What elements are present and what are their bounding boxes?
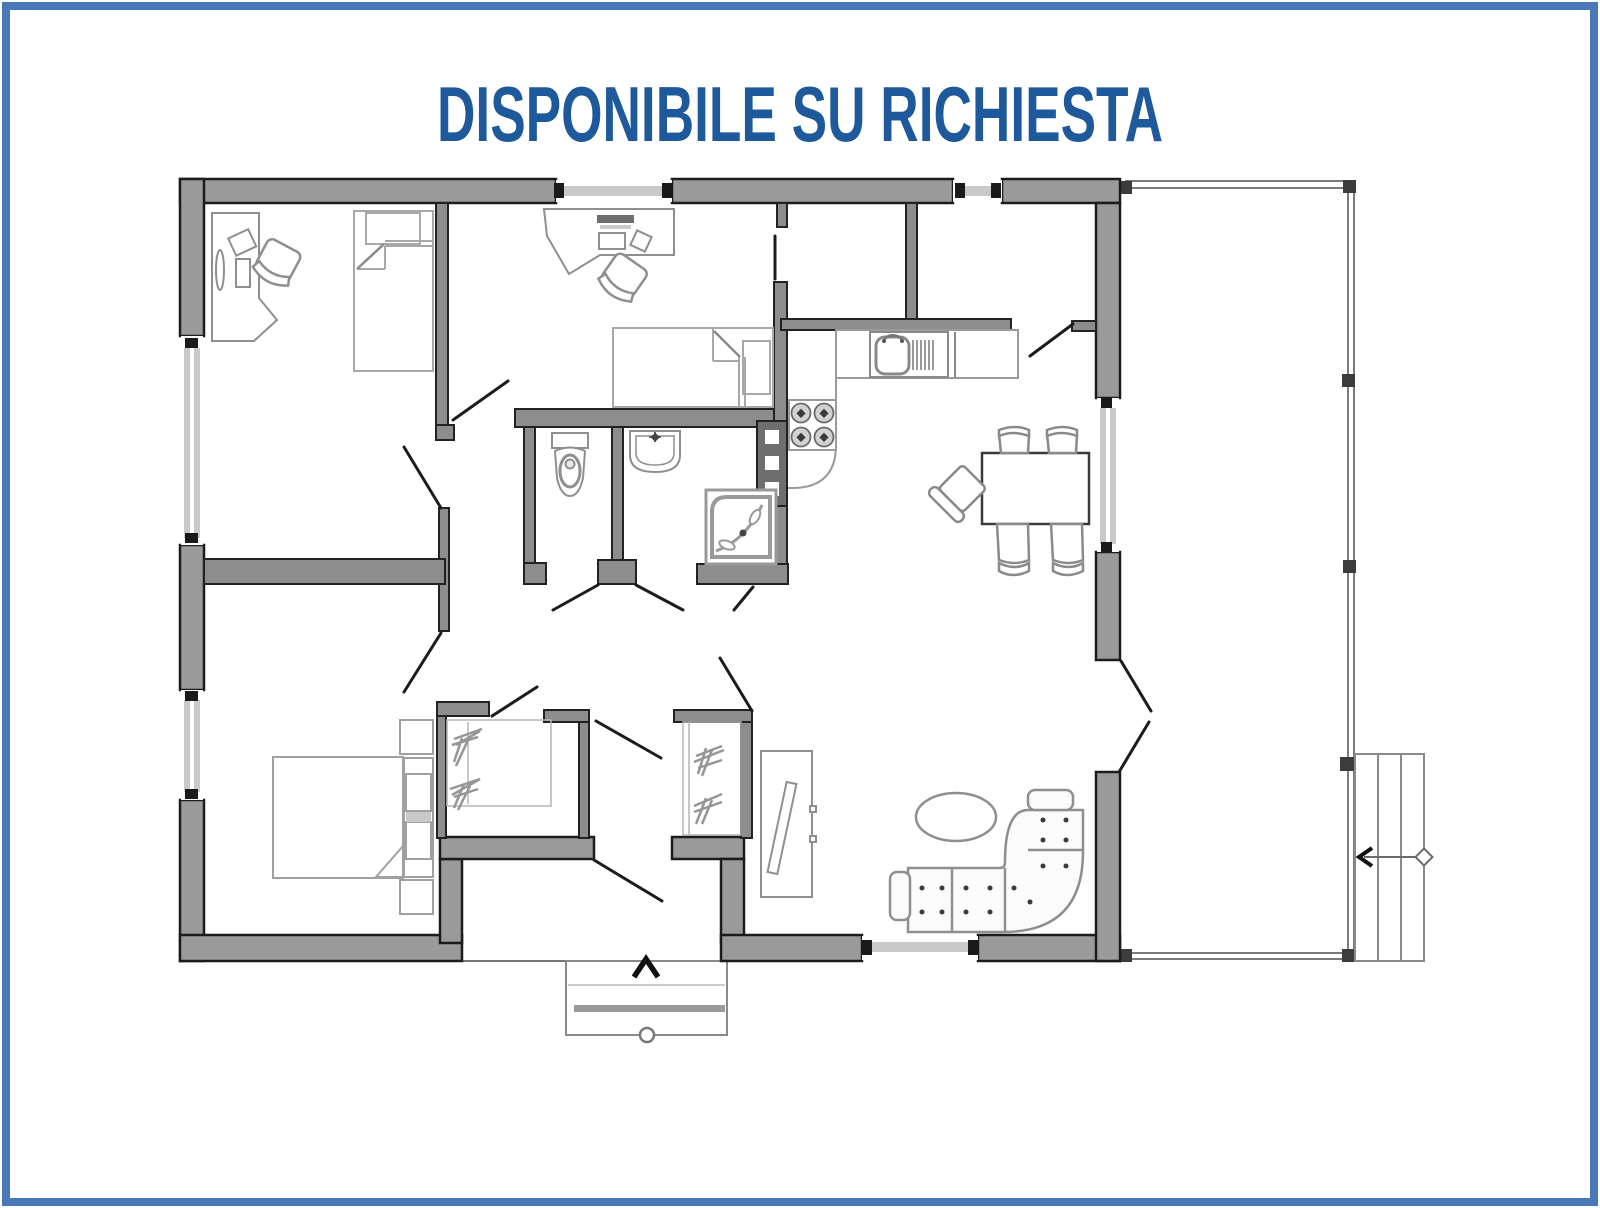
svg-text:DISPONIBILE SU RICHIESTA: DISPONIBILE SU RICHIESTA <box>437 70 1163 158</box>
